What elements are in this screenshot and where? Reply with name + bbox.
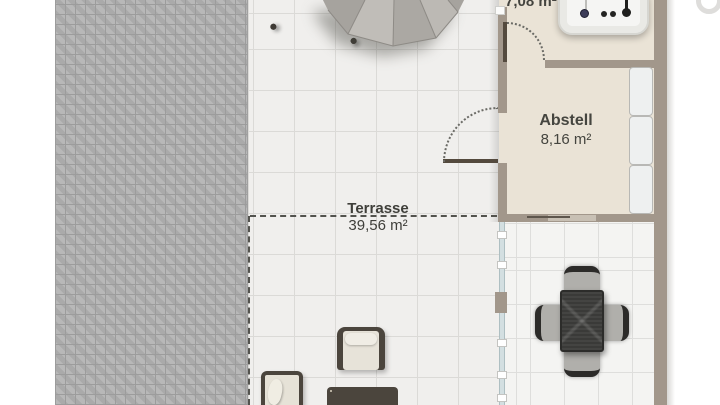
storage-room-label: Abstell xyxy=(518,112,614,130)
clipped-corner-shape xyxy=(696,0,720,14)
sofa-cushion xyxy=(330,390,332,392)
dining-table-icon xyxy=(560,290,604,352)
utility-room-area-label: 7,08 m² xyxy=(505,0,575,10)
window-mullion xyxy=(497,394,507,402)
storage-room-area-label: 8,16 m² xyxy=(518,131,614,148)
dining-chair-icon xyxy=(601,305,629,341)
appliance-knob xyxy=(580,9,589,18)
door-sill xyxy=(495,6,505,15)
sliding-door-track xyxy=(527,216,570,218)
appliance-knob xyxy=(610,11,616,17)
armchair-icon xyxy=(337,327,385,370)
window-post xyxy=(495,292,507,313)
appliance-knob xyxy=(622,8,631,17)
dining-chair-icon xyxy=(535,305,563,341)
armchair-back-cushion xyxy=(345,333,377,345)
terrace-area-label: 39,56 m² xyxy=(328,217,428,234)
terrace-boundary-vertical xyxy=(248,216,250,405)
blanket xyxy=(265,378,285,405)
window-mullion xyxy=(497,339,507,347)
armchair-icon xyxy=(261,371,303,405)
window-mullion xyxy=(497,231,507,239)
wall-right-exterior xyxy=(654,0,667,405)
shelf-box xyxy=(629,165,653,214)
window-mullion xyxy=(497,371,507,379)
floor-plan: Terrasse 39,56 m² Abstell 8,16 m² 7,08 m… xyxy=(0,0,720,405)
parasol-icon xyxy=(323,0,473,70)
paved-area xyxy=(55,0,248,405)
sofa-icon xyxy=(327,387,398,405)
shelf-box xyxy=(629,67,653,116)
dining-chair-icon xyxy=(564,349,600,377)
window-mullion xyxy=(497,261,507,269)
terrace-label: Terrasse xyxy=(328,200,428,217)
shelf-box xyxy=(629,116,653,165)
appliance-knob xyxy=(601,11,607,17)
wall-shadow xyxy=(667,0,675,405)
